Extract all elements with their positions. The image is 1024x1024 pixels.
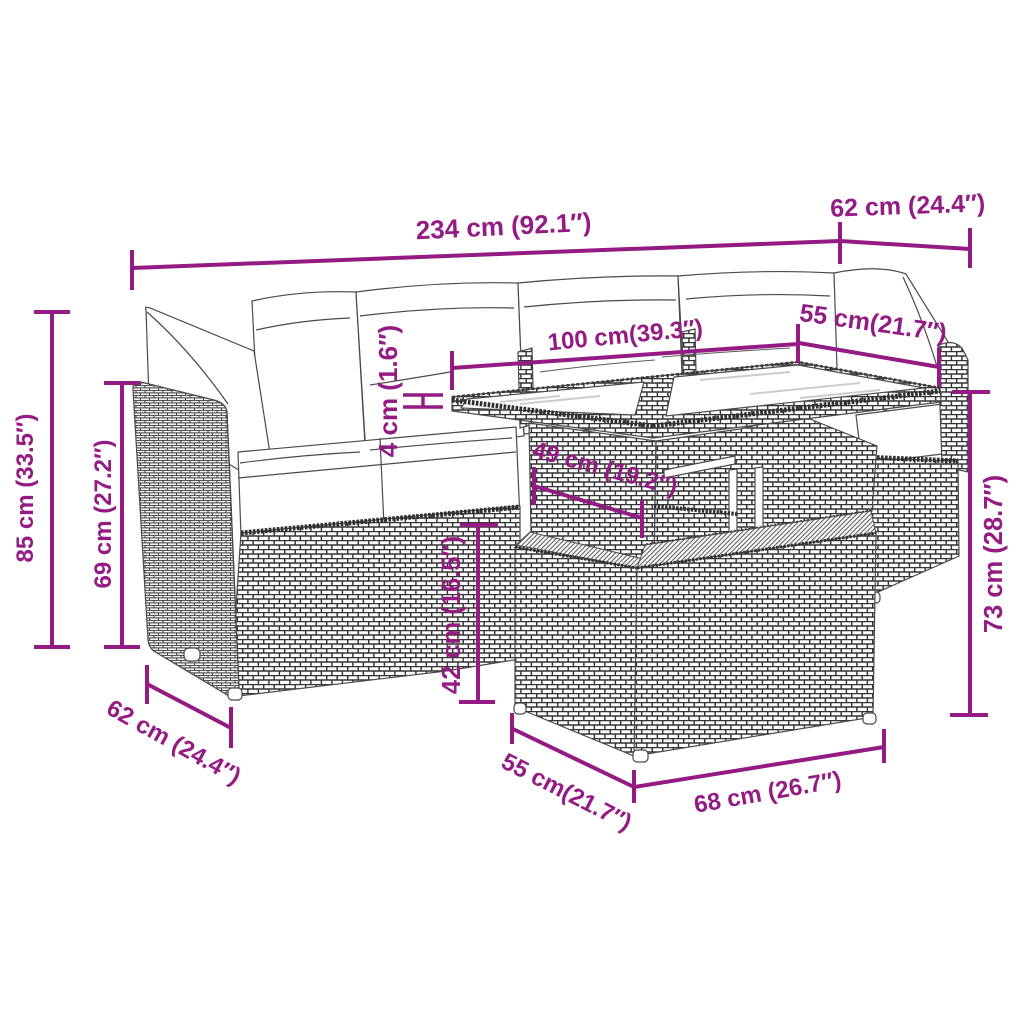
svg-text:69 cm (27.2″): 69 cm (27.2″) <box>90 440 117 589</box>
svg-text:85 cm (33.5″): 85 cm (33.5″) <box>12 414 39 563</box>
svg-text:4 cm (1.6″): 4 cm (1.6″) <box>373 325 403 457</box>
svg-text:42 cm (16.5″): 42 cm (16.5″) <box>438 536 466 694</box>
svg-text:62 cm (24.4″): 62 cm (24.4″) <box>830 189 986 222</box>
svg-text:73 cm (28.7″): 73 cm (28.7″) <box>980 475 1008 633</box>
